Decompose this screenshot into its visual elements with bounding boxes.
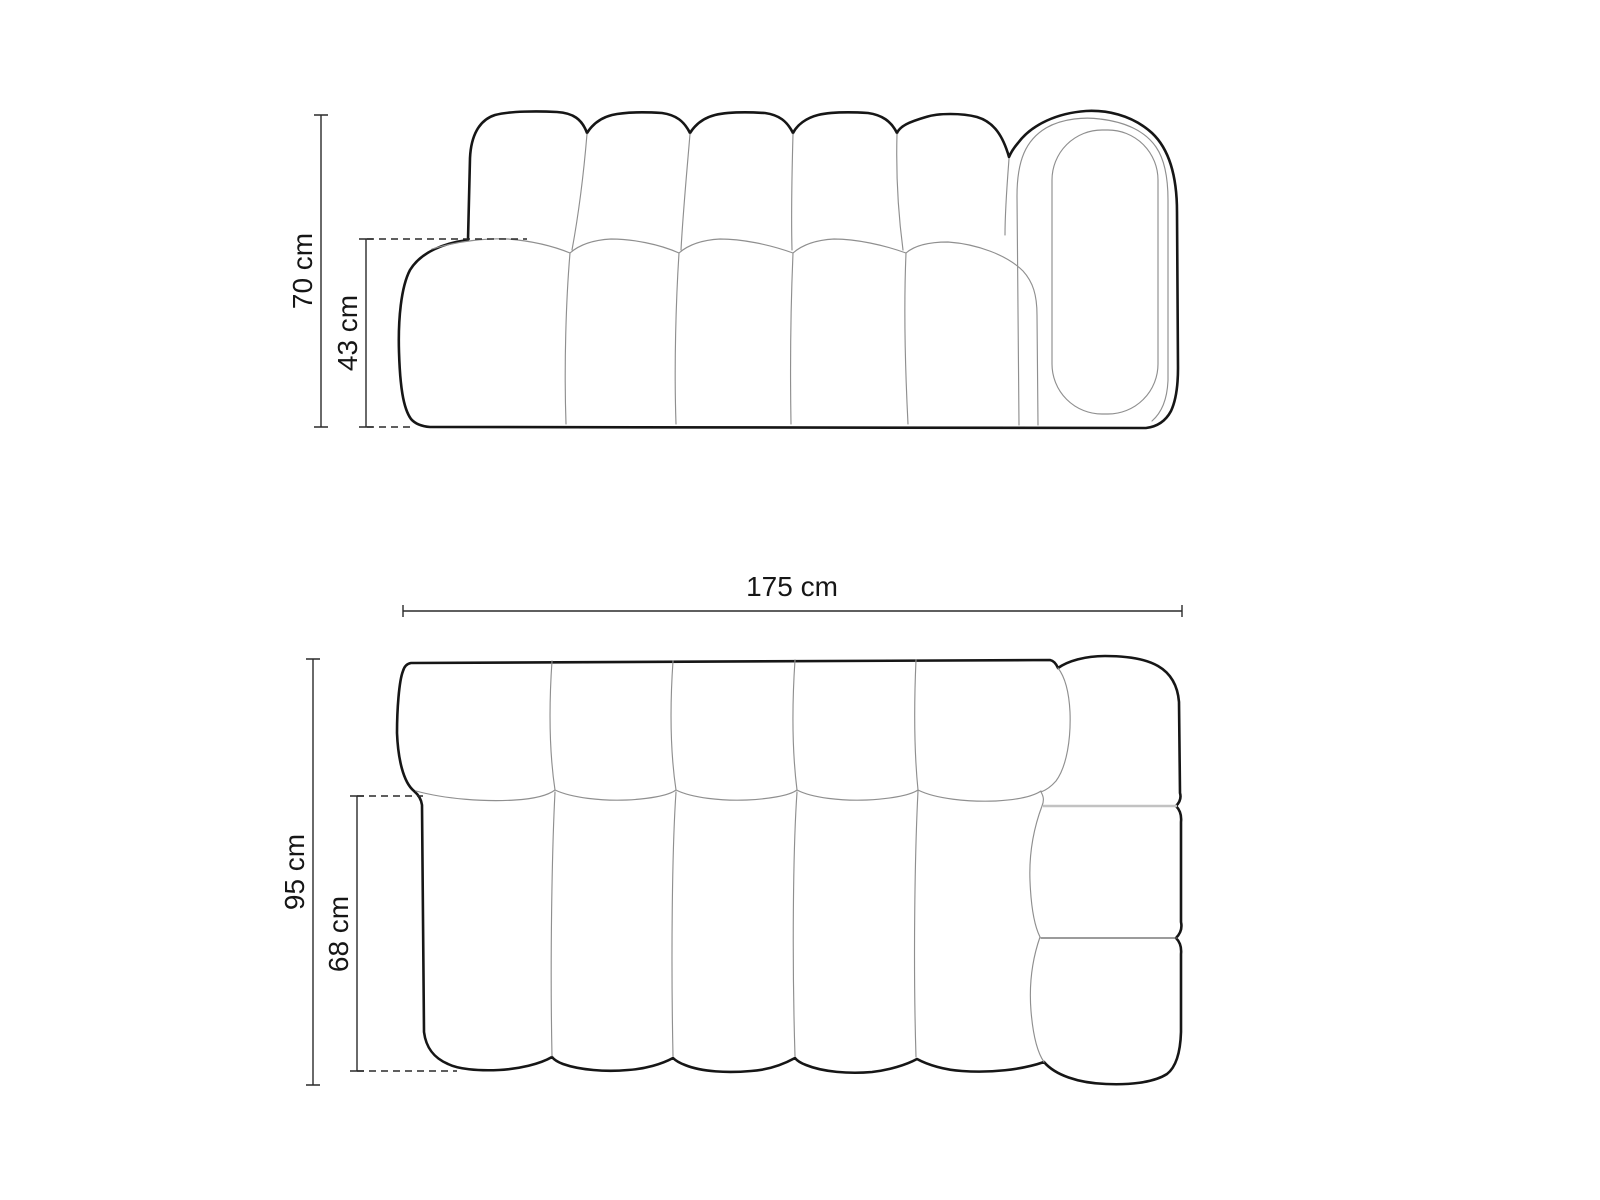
front-seat-valley-seams [565, 253, 908, 424]
front-seat-cushion-seams [432, 239, 1038, 425]
dim-seat-height: 43 cm [332, 239, 527, 427]
dim-seat-depth: 68 cm [323, 796, 457, 1071]
sofa-dimension-diagram: 70 cm 43 cm 175 cm 95 cm [0, 0, 1600, 1200]
dim-seat-height-label: 43 cm [332, 295, 363, 371]
dim-total-height: 70 cm [287, 115, 328, 427]
front-elevation-view: 70 cm 43 cm [287, 111, 1178, 428]
plan-top-view: 175 cm 95 cm 68 cm [279, 571, 1182, 1085]
front-sofa-silhouette [399, 111, 1178, 428]
dim-total-width-line [403, 605, 1182, 617]
dimension-drawing-canvas: 70 cm 43 cm 175 cm 95 cm [0, 0, 1600, 1200]
plan-seat-column-seams [551, 791, 918, 1057]
front-back-valley-seams [572, 134, 1009, 250]
front-armrest-panel-seam [1052, 130, 1158, 414]
plan-armrest-boundary-seam [1030, 668, 1070, 1062]
plan-sofa-silhouette [397, 656, 1181, 1084]
dim-total-width: 175 cm [403, 571, 1182, 617]
plan-backrest-seat-boundary [416, 790, 1041, 801]
front-armrest-offset-seam [1017, 118, 1168, 425]
dim-seat-depth-label: 68 cm [323, 896, 354, 972]
dim-total-depth-label: 95 cm [279, 834, 310, 910]
dim-seat-depth-extension-dashes [357, 796, 457, 1071]
plan-backrest-seams [550, 660, 918, 790]
dim-total-depth: 95 cm [279, 659, 320, 1085]
dim-seat-height-extension-dashes [367, 239, 527, 427]
dim-total-width-label: 175 cm [746, 571, 838, 602]
dim-total-height-label: 70 cm [287, 233, 318, 309]
